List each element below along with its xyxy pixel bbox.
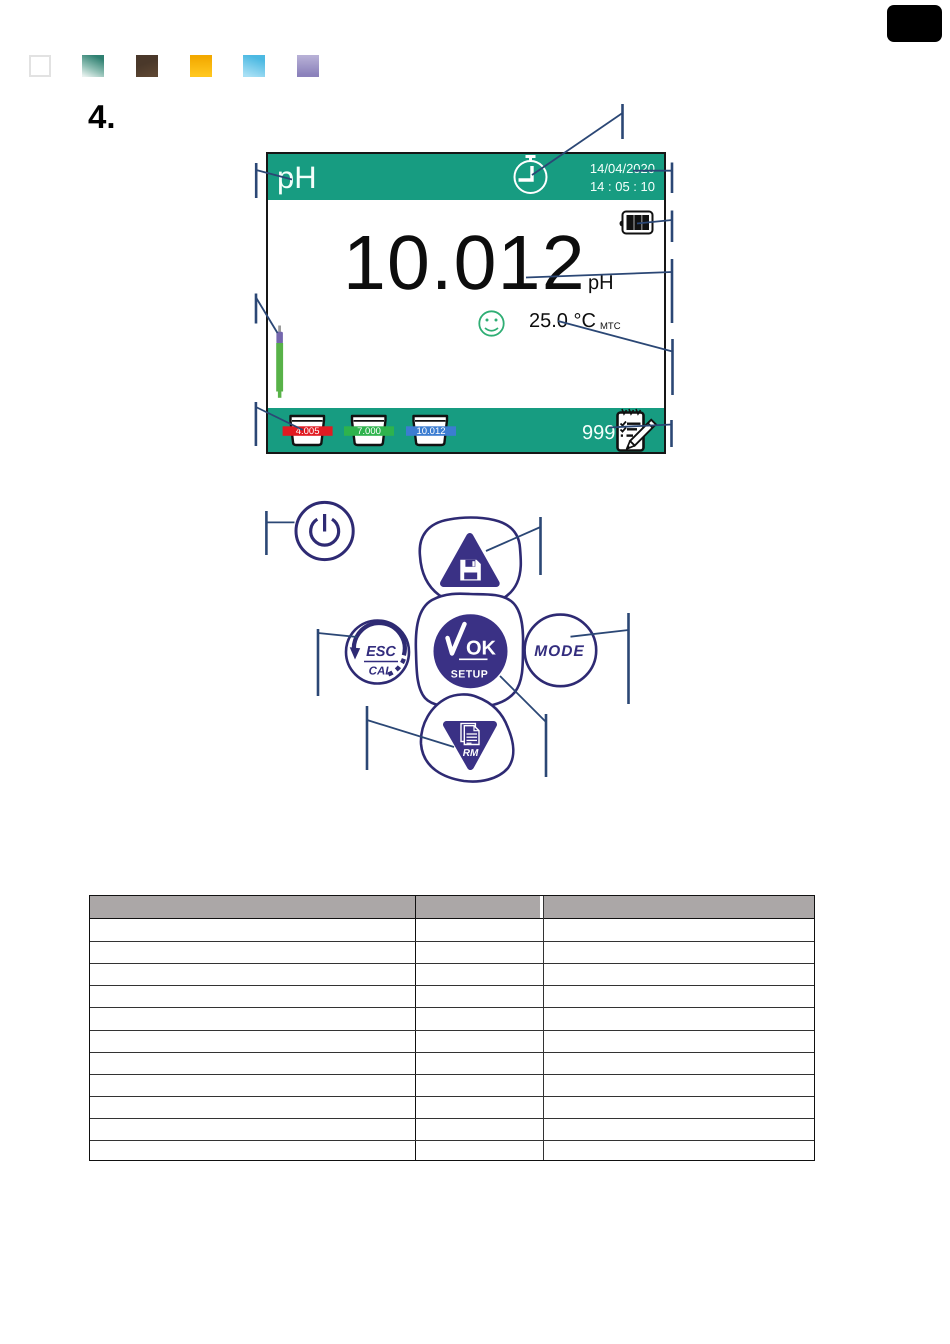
svg-text:10.012: 10.012 [416, 426, 445, 437]
svg-text:OK: OK [466, 638, 497, 660]
svg-text:MODE: MODE [534, 643, 585, 660]
svg-text:SETUP: SETUP [451, 669, 489, 681]
svg-text:RM: RM [463, 748, 479, 759]
svg-text:7.000: 7.000 [357, 426, 381, 437]
svg-text:ESC: ESC [366, 644, 396, 660]
svg-text:CAL: CAL [369, 666, 393, 678]
